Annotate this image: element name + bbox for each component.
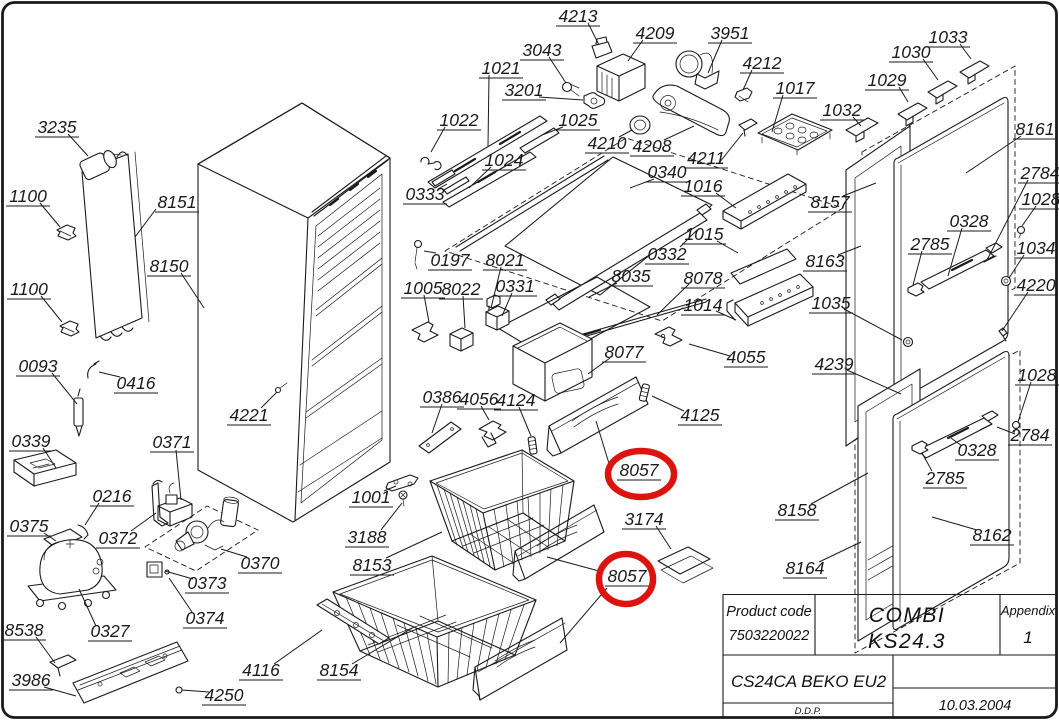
- part-label-0197: 0197: [431, 250, 471, 270]
- part-label-3043: 3043: [523, 40, 562, 60]
- part-label-8161: 8161: [1016, 119, 1055, 139]
- variant-name: CS24CA BEKO EU2: [731, 672, 887, 691]
- parts-diagram: 3235110081518150110000930416422103390371…: [0, 0, 1059, 720]
- part-label-1021: 1021: [482, 58, 521, 78]
- part-label-8078: 8078: [684, 268, 723, 288]
- part-label-1032: 1032: [823, 100, 862, 120]
- part-label-4055: 4055: [727, 347, 766, 367]
- part-label-1028: 1028: [1022, 189, 1059, 209]
- part-label-4056: 4056: [460, 389, 499, 409]
- part-label-1001: 1001: [352, 487, 391, 507]
- part-label-4239: 4239: [815, 354, 854, 374]
- part-label-8057: 8057: [620, 460, 660, 480]
- part-label-3986: 3986: [12, 670, 51, 690]
- appendix-label: Appendix: [1000, 603, 1056, 618]
- part-label-4208: 4208: [633, 136, 672, 156]
- part-label-2785: 2785: [910, 234, 950, 254]
- part-label-1005: 1005: [404, 278, 443, 298]
- part-label-0375: 0375: [10, 516, 49, 536]
- model-name-line2: KS24.3: [868, 630, 946, 653]
- part-label-4221: 4221: [230, 405, 269, 425]
- part-label-8057: 8057: [608, 566, 648, 586]
- part-label-4212: 4212: [743, 53, 782, 73]
- part-label-3201: 3201: [505, 80, 544, 100]
- part-label-8538: 8538: [5, 620, 44, 640]
- part-label-2784: 2784: [1020, 163, 1059, 183]
- part-label-0093: 0093: [19, 356, 58, 376]
- part-label-8164: 8164: [786, 558, 825, 578]
- part-label-4124: 4124: [497, 390, 536, 410]
- part-label-1100: 1100: [10, 279, 48, 299]
- product-code-label: Product code: [726, 604, 811, 620]
- part-label-1033: 1033: [929, 27, 968, 47]
- part-label-8151: 8151: [158, 192, 197, 212]
- part-label-0340: 0340: [648, 162, 687, 182]
- part-label-1022: 1022: [440, 110, 479, 130]
- part-label-8158: 8158: [778, 500, 817, 520]
- part-label-0339: 0339: [12, 431, 51, 451]
- part-label-1024: 1024: [485, 150, 524, 170]
- part-label-0371: 0371: [153, 432, 192, 452]
- part-label-8077: 8077: [605, 342, 645, 362]
- part-label-4116: 4116: [242, 660, 280, 680]
- part-label-8022: 8022: [442, 279, 481, 299]
- part-label-1029: 1029: [868, 70, 907, 90]
- part-label-3951: 3951: [711, 23, 750, 43]
- diagram-page: 3235110081518150110000930416422103390371…: [0, 0, 1059, 720]
- part-label-4210: 4210: [588, 133, 627, 153]
- part-label-1017: 1017: [776, 78, 816, 98]
- part-label-1016: 1016: [684, 176, 723, 196]
- part-label-4125: 4125: [681, 405, 720, 425]
- model-name-line1: COMBI: [869, 604, 945, 627]
- part-label-0327: 0327: [91, 621, 131, 641]
- part-label-0373: 0373: [188, 573, 227, 593]
- part-label-3188: 3188: [348, 527, 387, 547]
- part-label-8162: 8162: [973, 525, 1012, 545]
- part-label-0333: 0333: [406, 184, 445, 204]
- part-label-3174: 3174: [625, 509, 664, 529]
- part-label-4213: 4213: [559, 6, 598, 26]
- part-label-1028: 1028: [1018, 365, 1057, 385]
- product-code-value: 7503220022: [729, 628, 810, 644]
- part-label-0332: 0332: [648, 244, 687, 264]
- part-label-0372: 0372: [99, 528, 138, 548]
- part-label-1030: 1030: [892, 42, 931, 62]
- part-label-1014: 1014: [684, 295, 723, 315]
- part-label-0386: 0386: [423, 387, 462, 407]
- part-label-1025: 1025: [559, 110, 598, 130]
- part-label-8035: 8035: [612, 266, 651, 286]
- part-label-8154: 8154: [320, 660, 359, 680]
- part-label-2785: 2785: [925, 468, 965, 488]
- part-label-8150: 8150: [150, 256, 189, 276]
- revision-date: 10.03.2004: [939, 698, 1012, 714]
- part-label-4220: 4220: [1017, 275, 1056, 295]
- part-label-1035: 1035: [812, 293, 851, 313]
- drafter-initials: D.D.P.: [795, 706, 822, 717]
- part-label-4250: 4250: [205, 685, 244, 705]
- part-label-0216: 0216: [93, 486, 132, 506]
- part-label-2784: 2784: [1010, 425, 1050, 445]
- appendix-value: 1: [1023, 628, 1032, 647]
- part-label-8163: 8163: [806, 251, 845, 271]
- part-label-4209: 4209: [636, 23, 675, 43]
- part-label-0374: 0374: [186, 608, 225, 628]
- part-label-1034: 1034: [1017, 238, 1056, 258]
- part-label-8153: 8153: [353, 555, 392, 575]
- part-label-3235: 3235: [38, 117, 77, 137]
- part-label-0328: 0328: [950, 211, 989, 231]
- part-label-1100: 1100: [9, 186, 47, 206]
- part-label-8021: 8021: [486, 250, 525, 270]
- part-label-0416: 0416: [117, 373, 156, 393]
- part-label-8157: 8157: [811, 192, 851, 212]
- cabinet: [198, 103, 390, 522]
- part-label-4211: 4211: [687, 148, 725, 168]
- part-label-1015: 1015: [685, 224, 724, 244]
- part-label-0328: 0328: [958, 440, 997, 460]
- part-label-0370: 0370: [241, 553, 280, 573]
- part-label-0331: 0331: [496, 276, 535, 296]
